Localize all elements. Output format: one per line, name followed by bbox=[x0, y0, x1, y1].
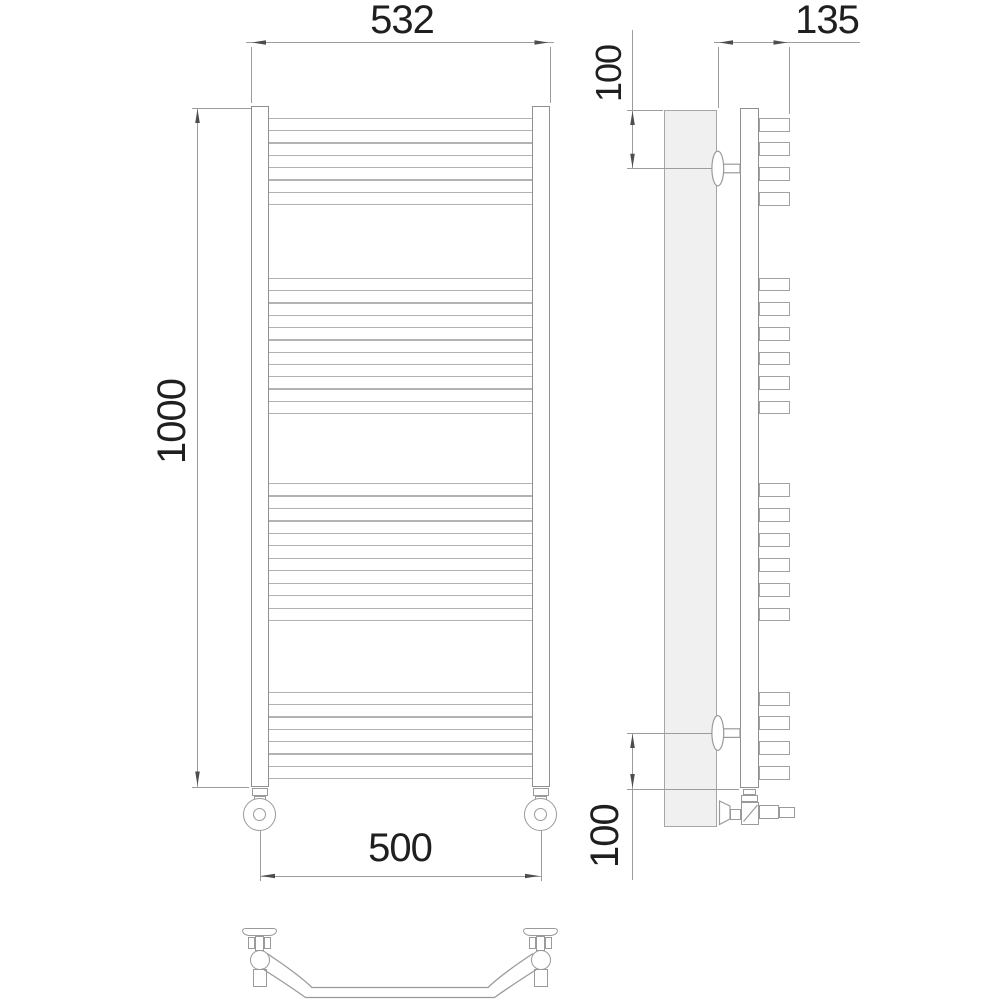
front-rung-line bbox=[269, 352, 532, 353]
side-rung-end bbox=[759, 302, 791, 316]
front-rung-line bbox=[269, 692, 532, 693]
dim-1000-label: 1000 bbox=[149, 372, 195, 472]
front-rung-line bbox=[269, 364, 532, 365]
dim-100bot-ext-2 bbox=[627, 789, 739, 790]
top-left-nut-a bbox=[248, 937, 255, 949]
front-rung-line bbox=[269, 778, 532, 779]
drawing-canvas: 532 135 100 1000 500 100 bbox=[0, 0, 1000, 1000]
top-left-drop bbox=[253, 969, 267, 987]
side-rung-end bbox=[759, 508, 791, 522]
side-rung-end bbox=[759, 716, 791, 730]
front-rung-line bbox=[269, 339, 532, 340]
side-valve-outlet bbox=[759, 805, 779, 819]
top-right-nut-a bbox=[529, 937, 536, 949]
front-rung-line bbox=[269, 570, 532, 571]
top-left-stem bbox=[255, 936, 264, 951]
top-left-flange bbox=[242, 928, 277, 937]
front-rung-line bbox=[269, 620, 532, 621]
top-left-riser-circle bbox=[250, 950, 270, 970]
overlay-graphics bbox=[0, 0, 1000, 1000]
dim-500-ext-right bbox=[541, 831, 542, 881]
side-rung-end bbox=[759, 692, 791, 706]
side-wall bbox=[664, 110, 718, 827]
front-left-rail bbox=[251, 106, 269, 787]
side-rung-end bbox=[759, 192, 791, 206]
top-right-nut-b bbox=[545, 937, 552, 949]
dim-100bot-label: 100 bbox=[582, 799, 628, 874]
side-rung-end bbox=[759, 376, 791, 390]
front-rung-line bbox=[269, 327, 532, 328]
dim-532-ext-left bbox=[251, 47, 252, 103]
side-rail bbox=[740, 108, 759, 788]
side-rung-end bbox=[759, 142, 791, 156]
dim-500-line bbox=[260, 876, 541, 877]
side-rung-end bbox=[759, 608, 791, 622]
front-rung-line bbox=[269, 290, 532, 291]
dim-100top-label: 100 bbox=[588, 43, 630, 103]
dim-532-ext-right bbox=[550, 47, 551, 103]
front-rung-line bbox=[269, 376, 532, 377]
front-rung-line bbox=[269, 753, 532, 754]
front-rung-line bbox=[269, 766, 532, 767]
front-right-foot-collar bbox=[533, 788, 549, 796]
front-rung-line bbox=[269, 278, 532, 279]
dim-500-ext-left bbox=[260, 831, 261, 881]
side-rung-end bbox=[759, 558, 791, 572]
side-rung-end bbox=[759, 327, 791, 341]
top-right-riser-circle bbox=[531, 950, 551, 970]
side-rung-end bbox=[759, 278, 791, 292]
front-rung-line bbox=[269, 142, 532, 143]
dim-1000-ext-top bbox=[192, 108, 251, 109]
dim-100bot-ext-1 bbox=[627, 733, 712, 734]
front-rung-line bbox=[269, 315, 532, 316]
top-right-drop bbox=[534, 969, 548, 987]
top-left-nut-b bbox=[264, 937, 271, 949]
front-rung-line bbox=[269, 704, 532, 705]
front-rung-line bbox=[269, 716, 532, 717]
side-rung-end bbox=[759, 401, 791, 415]
front-rung-line bbox=[269, 302, 532, 303]
top-view-bar bbox=[262, 954, 538, 998]
front-right-valve-inner bbox=[534, 808, 547, 821]
front-rung-line bbox=[269, 729, 532, 730]
dim-100top-ext-2 bbox=[627, 168, 712, 169]
front-right-rail bbox=[532, 106, 550, 787]
dim-500-label: 500 bbox=[340, 828, 460, 868]
side-valve-wallpipe bbox=[730, 809, 741, 820]
dim-135-ext-right bbox=[789, 47, 790, 114]
front-rung-line bbox=[269, 401, 532, 402]
front-rung-line bbox=[269, 155, 532, 156]
dim-135-line bbox=[714, 42, 860, 43]
top-right-stem bbox=[536, 936, 545, 951]
front-rung-line bbox=[269, 118, 532, 119]
front-rung-line bbox=[269, 520, 532, 521]
front-rung-line bbox=[269, 558, 532, 559]
front-rung-line bbox=[269, 483, 532, 484]
top-right-flange bbox=[523, 928, 558, 937]
front-rung-line bbox=[269, 192, 532, 193]
front-rung-line bbox=[269, 179, 532, 180]
dim-100top-ext-1 bbox=[627, 110, 663, 111]
front-rung-line bbox=[269, 741, 532, 742]
front-rung-line bbox=[269, 388, 532, 389]
side-rung-end bbox=[759, 583, 791, 597]
front-rung-line bbox=[269, 167, 532, 168]
front-rung-line bbox=[269, 583, 532, 584]
front-rung-line bbox=[269, 608, 532, 609]
side-rung-end bbox=[759, 483, 791, 497]
side-rung-end bbox=[759, 741, 791, 755]
front-rung-line bbox=[269, 495, 532, 496]
side-valve-escutcheon bbox=[720, 801, 731, 825]
front-rung-line bbox=[269, 413, 532, 414]
front-rung-line bbox=[269, 533, 532, 534]
front-rung-line bbox=[269, 204, 532, 205]
dim-1000-ext-bottom bbox=[192, 787, 249, 788]
front-rung-line bbox=[269, 595, 532, 596]
front-left-foot-collar bbox=[252, 788, 268, 796]
dim-135-label: 135 bbox=[779, 0, 875, 40]
dim-135-ext-left bbox=[718, 47, 719, 108]
front-left-valve-inner bbox=[253, 808, 266, 821]
dim-100top-line bbox=[632, 30, 633, 169]
side-valve-spindle bbox=[779, 807, 796, 818]
dim-532-line bbox=[246, 42, 554, 43]
front-rung-line bbox=[269, 508, 532, 509]
dim-1000-line bbox=[197, 108, 198, 787]
side-rung-end bbox=[759, 352, 791, 366]
dim-100bot-line bbox=[632, 733, 633, 880]
dim-532-label: 532 bbox=[342, 0, 462, 40]
front-rung-line bbox=[269, 130, 532, 131]
side-rung-end bbox=[759, 533, 791, 547]
side-rung-end bbox=[759, 766, 791, 780]
side-rung-end bbox=[759, 118, 791, 132]
side-valve-body bbox=[741, 802, 759, 826]
side-rung-end bbox=[759, 167, 791, 181]
front-rung-line bbox=[269, 545, 532, 546]
